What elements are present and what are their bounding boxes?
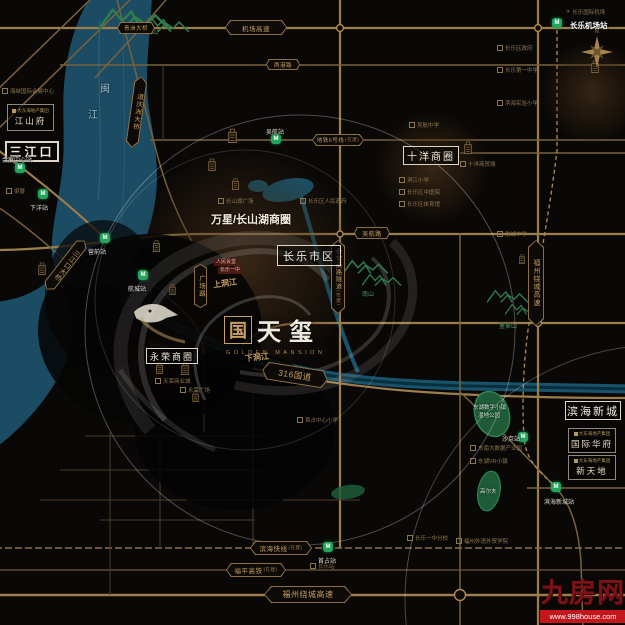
- metro-station-label: 滨海新城站: [544, 497, 574, 506]
- watermark: 九房网 www.998house.com: [540, 577, 625, 623]
- road-badge: 福州绕城高速: [528, 240, 544, 326]
- poi-square-icon: [497, 67, 503, 73]
- developer-project-box: 大东海地产集团新天地: [568, 455, 616, 480]
- metro-station-label: 吴航站: [266, 127, 284, 136]
- poi-label: 梁厝: [6, 187, 25, 195]
- poi-square-icon: [470, 445, 476, 451]
- road-badge: 三江口大桥: [41, 237, 89, 294]
- metro-station-icon: M: [551, 482, 561, 492]
- map-label: 江: [88, 106, 98, 121]
- metro-station-icon: M: [138, 270, 148, 280]
- poi-square-icon: [399, 189, 405, 195]
- poi-square-icon: [218, 198, 224, 204]
- developer-logo-icon: [12, 109, 16, 113]
- poi-label: 滨海实验小学: [497, 99, 538, 107]
- poi-square-icon: [297, 417, 303, 423]
- poi-label: 长乐区政府: [497, 44, 533, 52]
- project-logo: 国 天玺 GOLDEN MANSION: [224, 312, 364, 356]
- poi-square-icon: [456, 538, 462, 544]
- metro-station-icon: M: [38, 189, 48, 199]
- poi-square-icon: [470, 458, 476, 464]
- metro-station-label: 首占站: [318, 556, 336, 565]
- road-badge: 吴航路: [354, 227, 390, 239]
- poi-square-icon: [310, 563, 316, 569]
- logo-name: 天玺: [257, 312, 321, 347]
- poi-square-icon: [409, 122, 415, 128]
- metro-station-icon: M: [15, 163, 25, 173]
- district-box: 滨海新城: [565, 401, 621, 420]
- poi-square-icon: [497, 231, 503, 237]
- metro-station-label: 会展中心站: [2, 155, 32, 164]
- poi-label: 吴航中学: [409, 121, 439, 129]
- poi-label: 长乐区中医院: [399, 188, 440, 196]
- road-badge: 福平高铁(在建): [226, 563, 286, 577]
- poi-label: 航城中学: [497, 230, 527, 238]
- metro-station-label: 营前站: [88, 247, 106, 256]
- poi-square-icon: [460, 161, 466, 167]
- metro-station-icon: M: [552, 18, 562, 28]
- poi-square-icon: [6, 188, 12, 194]
- developer-logo-icon: [574, 432, 578, 436]
- road-badge: 机场高速: [225, 20, 287, 35]
- map-label: 万星/长山湖商圈: [211, 211, 291, 227]
- road-badge: 地铁6号线(在建): [312, 134, 364, 146]
- poi-label: 长乐第一中学: [497, 66, 538, 74]
- poi-label: 十洋商贸城: [460, 160, 496, 168]
- poi-square-icon: [155, 378, 161, 384]
- poi-square-icon: [497, 100, 503, 106]
- map-label: 闽: [100, 80, 110, 95]
- metro-station-label: 长乐机场站: [570, 20, 608, 31]
- poi-label: 天荣商业城: [155, 377, 191, 385]
- poi-square-icon: [180, 387, 186, 393]
- developer-project-box: 大东海地产集团国际华府: [568, 428, 616, 453]
- metro-station-icon: M: [100, 233, 110, 243]
- map-label: 南山: [362, 289, 374, 298]
- poi-square-icon: [399, 177, 405, 183]
- location-map: N 机场高速青洲大桥两港路地铁6号线(在建)道庆洲大桥三江口大桥吴航路广场路会堂…: [0, 0, 625, 625]
- poi-square-icon: [497, 45, 503, 51]
- plane-icon: ✈: [566, 9, 570, 15]
- road-badge: 广场路: [194, 264, 207, 308]
- developer-logo-icon: [574, 459, 578, 463]
- poi-square-icon: [407, 535, 413, 541]
- poi-label: 长乐区人民政府: [300, 197, 347, 205]
- poi-label: 首占中心小学: [297, 416, 338, 424]
- road-badge: 两港路: [266, 59, 300, 70]
- poi-label: 长乐一中分校: [407, 534, 448, 542]
- poi-label: 永荣广场: [180, 386, 210, 394]
- district-box: 长乐市区: [277, 245, 341, 266]
- poi-square-icon: [300, 198, 306, 204]
- logo-subtitle: GOLDEN MANSION: [226, 350, 364, 356]
- map-label: 高尔夫: [480, 487, 497, 495]
- metro-station-label: 沙京站: [502, 434, 520, 443]
- district-box: 永荣商圈: [146, 348, 198, 364]
- road-badge: 道庆洲大桥: [125, 75, 148, 148]
- poi-label: 洞江小学: [399, 176, 429, 184]
- map-label: 董奉山: [499, 321, 517, 330]
- road-badge: 316国道: [261, 361, 329, 389]
- poi-label: 东湖VR小镇: [470, 457, 508, 465]
- road-badge: 福州绕城高速: [264, 586, 352, 603]
- road-badge: 青洲大桥: [117, 22, 155, 34]
- poi-label: 长山湖广场: [218, 197, 254, 205]
- poi-square-icon: [399, 201, 405, 207]
- logo-boxed-char: 国: [224, 316, 252, 344]
- poi-label: 长乐区体育馆: [399, 200, 440, 208]
- poi-square-icon: [2, 88, 8, 94]
- district-box: 十洋商圈: [403, 146, 459, 165]
- map-label: 东湖数字小镇: [473, 403, 506, 411]
- poi-label: 海峡国际会展中心: [2, 87, 54, 95]
- map-label: 湿地公园: [478, 411, 500, 419]
- developer-project-box: 大东海地产集团江山府: [7, 104, 54, 131]
- poi-red-tag: 人民会堂: [214, 259, 238, 266]
- poi-label: 福州外语外贸学院: [456, 537, 508, 545]
- metro-station-label: 下洋站: [30, 203, 48, 212]
- metro-station-icon: M: [323, 542, 333, 552]
- watermark-brand: 九房网: [540, 577, 625, 609]
- poi-red-tag: 长乐一中: [218, 267, 242, 274]
- metro-station-label: 航城站: [128, 284, 146, 293]
- watermark-url: www.998house.com: [540, 610, 625, 623]
- road-badge: 滨海快线(在建): [250, 541, 312, 555]
- map-label: 上洞江: [212, 276, 237, 290]
- poi-label: ✈长乐国际机场: [566, 8, 605, 16]
- poi-label: 东南大数据产业园: [470, 444, 522, 452]
